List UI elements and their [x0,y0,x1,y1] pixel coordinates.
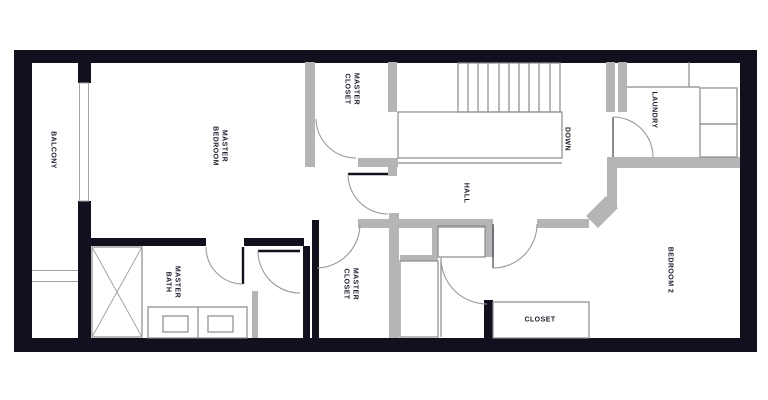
doors [206,117,653,304]
room-label-closet: CLOSET [524,315,555,324]
dryer [700,124,737,157]
room-label-balcony: BALCONY [48,131,57,169]
vanity [148,307,247,338]
room-label-master-bath: MASTER BATH [163,266,182,298]
room-label-bedroom-2: BEDROOM 2 [665,247,674,293]
suite-entry-door [348,174,388,214]
room-label-master-bedroom: MASTER BEDROOM [210,126,229,166]
interior-walls-gray [252,62,740,338]
laundry-fixtures [627,62,737,157]
toilet-room-door [258,251,300,293]
utility-closet-upper [438,226,485,257]
utility-closet-door [441,258,487,304]
room-label-laundry: LAUNDRY [649,91,658,128]
room-label-master-closet-lower: MASTER CLOSET [341,268,360,300]
bedroom2-door [493,224,537,268]
floor-plan-drawing [0,0,768,400]
stair-landing [398,112,562,158]
balcony-railing [32,271,78,282]
room-label-master-closet-upper: MASTER CLOSET [342,73,361,105]
floor-plan: BALCONY MASTER BEDROOM MASTER CLOSET DOW… [0,0,768,400]
staircase [398,63,562,163]
master-closet-upper-door [316,119,356,158]
utility-closets [400,226,485,337]
room-label-hall: HALL [461,183,470,203]
sink-right [208,316,233,332]
stairs-down-label: DOWN [562,127,571,151]
utility-closet-lower [400,261,438,337]
interior-walls-black [78,63,493,338]
washer [700,88,737,124]
laundry-door [613,117,653,157]
master-closet-lower-door [317,224,360,268]
balcony-window [80,83,89,201]
sink-left [163,316,188,332]
shower [92,247,142,337]
master-bath-door [206,247,243,284]
